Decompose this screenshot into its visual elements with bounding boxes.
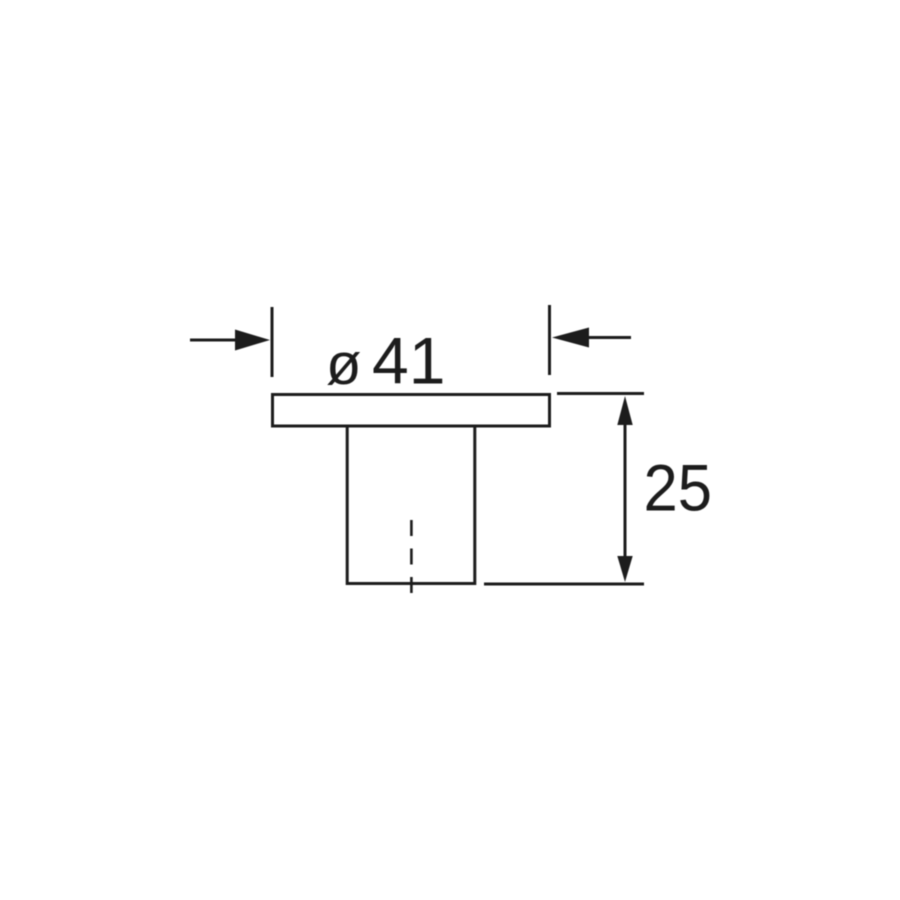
svg-text:ø: ø (326, 332, 361, 397)
svg-text:41: 41 (372, 324, 445, 398)
svg-text:25: 25 (644, 451, 713, 525)
